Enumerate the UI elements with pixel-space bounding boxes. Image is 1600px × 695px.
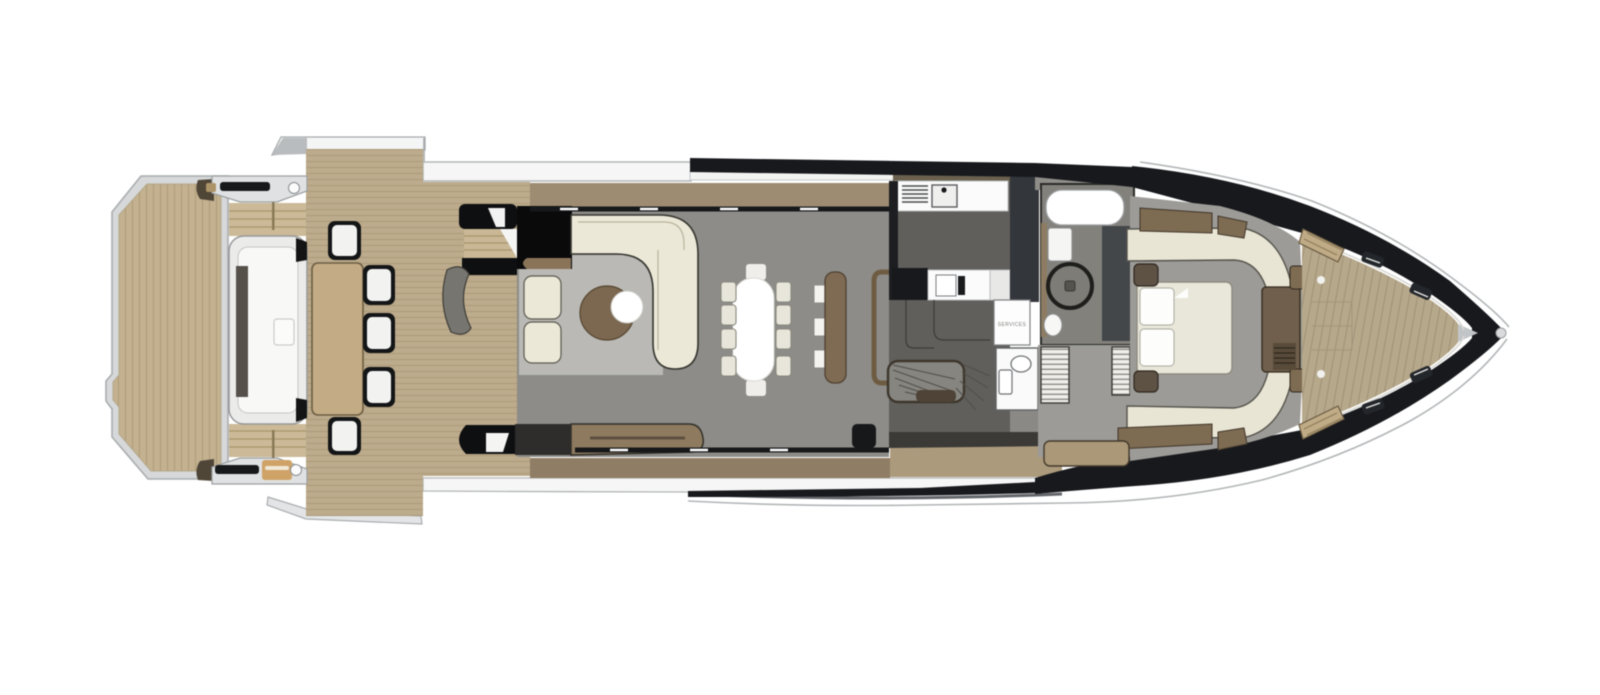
svg-text:SERVICES: SERVICES [998, 322, 1027, 328]
